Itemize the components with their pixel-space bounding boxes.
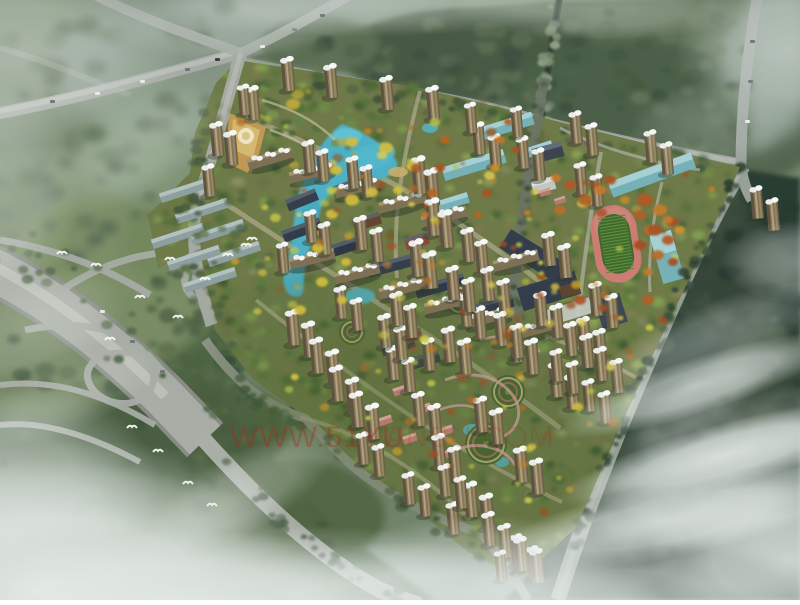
svg-text:WWW.51YU: WWW.51YU: [230, 421, 405, 454]
svg-text:ANSU.COM: ANSU.COM: [385, 421, 555, 454]
